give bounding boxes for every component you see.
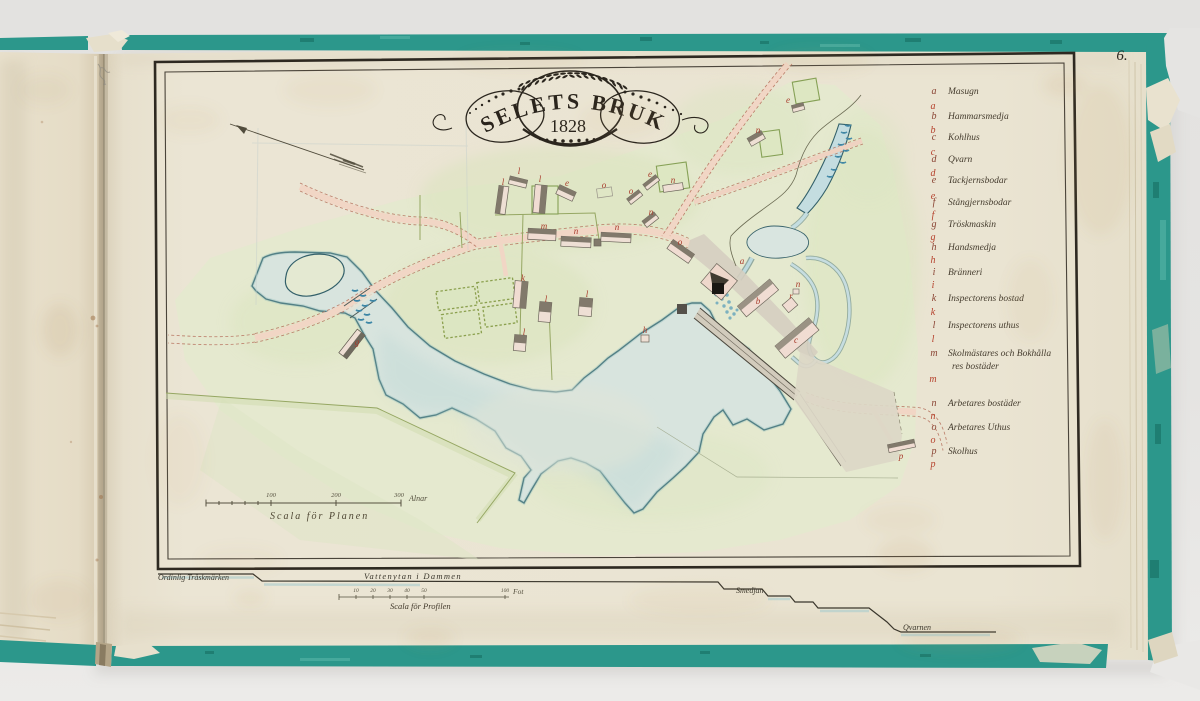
svg-text:Masugn: Masugn [947, 87, 979, 97]
svg-text:Arbetares bostäder: Arbetares bostäder [947, 399, 1021, 409]
svg-text:res bostäder: res bostäder [952, 362, 999, 372]
svg-text:p: p [930, 459, 936, 470]
svg-text:n: n [649, 207, 654, 217]
svg-text:n: n [574, 226, 579, 236]
svg-text:Tröskmaskin: Tröskmaskin [948, 220, 996, 230]
svg-text:h: h [932, 242, 937, 253]
svg-text:e: e [786, 95, 790, 105]
svg-text:Tackjernsbodar: Tackjernsbodar [948, 176, 1008, 186]
svg-text:k: k [932, 293, 937, 304]
svg-text:e: e [565, 178, 569, 188]
svg-text:o: o [931, 435, 936, 446]
svg-text:100: 100 [266, 492, 277, 499]
svg-text:p: p [898, 451, 904, 461]
svg-text:o: o [629, 186, 634, 196]
svg-text:n: n [796, 279, 801, 289]
svg-text:Handsmedja: Handsmedja [947, 243, 996, 253]
svg-text:a: a [932, 86, 937, 97]
svg-text:c: c [794, 335, 798, 345]
svg-text:Bränneri: Bränneri [948, 268, 983, 278]
svg-text:k: k [931, 307, 936, 318]
svg-text:a: a [931, 101, 936, 112]
svg-text:6.: 6. [1116, 48, 1127, 64]
svg-text:m: m [930, 348, 937, 359]
svg-text:b: b [756, 296, 761, 306]
svg-text:e: e [648, 169, 652, 179]
svg-text:m: m [929, 374, 936, 385]
svg-text:Kohlhus: Kohlhus [947, 133, 980, 143]
svg-text:Skolhus: Skolhus [948, 447, 978, 457]
svg-text:n: n [615, 222, 620, 232]
svg-text:300: 300 [393, 492, 405, 499]
svg-text:g: g [355, 337, 360, 347]
svg-text:l: l [932, 334, 935, 345]
svg-text:i: i [932, 280, 935, 291]
svg-text:Hammarsmedja: Hammarsmedja [947, 112, 1009, 122]
svg-text:Ordinlig Träskmärken: Ordinlig Träskmärken [158, 573, 229, 582]
svg-text:Skolmästares och Bokhålla: Skolmästares och Bokhålla [948, 348, 1051, 359]
svg-text:h: h [931, 255, 936, 266]
svg-text:l: l [933, 320, 936, 331]
svg-text:e: e [931, 191, 936, 202]
svg-text:o: o [678, 237, 683, 247]
svg-text:Arbetares Uthus: Arbetares Uthus [947, 423, 1010, 433]
svg-text:Alnar: Alnar [408, 494, 428, 503]
svg-text:n: n [932, 398, 937, 409]
svg-text:Inspectorens uthus: Inspectorens uthus [947, 321, 1019, 331]
svg-text:r: r [789, 291, 793, 301]
svg-text:b: b [932, 111, 937, 122]
svg-text:b: b [931, 125, 936, 136]
svg-text:n: n [931, 411, 936, 422]
svg-text:200: 200 [331, 492, 342, 499]
svg-text:Fot: Fot [512, 587, 524, 596]
svg-text:m: m [541, 221, 548, 231]
svg-text:a: a [740, 256, 745, 266]
svg-text:Scala för Profilen: Scala för Profilen [390, 601, 451, 611]
svg-text:Stångjernsbodar: Stångjernsbodar [948, 197, 1012, 208]
svg-text:Scala för Planen: Scala för Planen [270, 511, 369, 522]
svg-text:i: i [933, 267, 936, 278]
svg-text:50: 50 [421, 588, 427, 594]
svg-text:100: 100 [501, 588, 510, 594]
svg-text:n: n [756, 125, 761, 135]
svg-text:p: p [931, 446, 937, 457]
svg-text:40: 40 [404, 587, 410, 594]
svg-text:g: g [931, 232, 936, 243]
svg-text:h: h [643, 325, 648, 335]
svg-text:Vattenytan i Dammen: Vattenytan i Dammen [364, 571, 462, 581]
svg-text:c: c [931, 147, 936, 158]
svg-text:10: 10 [353, 588, 359, 594]
svg-text:n: n [671, 175, 676, 185]
svg-text:Qvarn: Qvarn [948, 155, 973, 165]
svg-text:o: o [602, 180, 607, 190]
svg-text:o: o [932, 422, 937, 433]
svg-text:20: 20 [370, 588, 376, 594]
svg-text:30: 30 [386, 588, 393, 594]
